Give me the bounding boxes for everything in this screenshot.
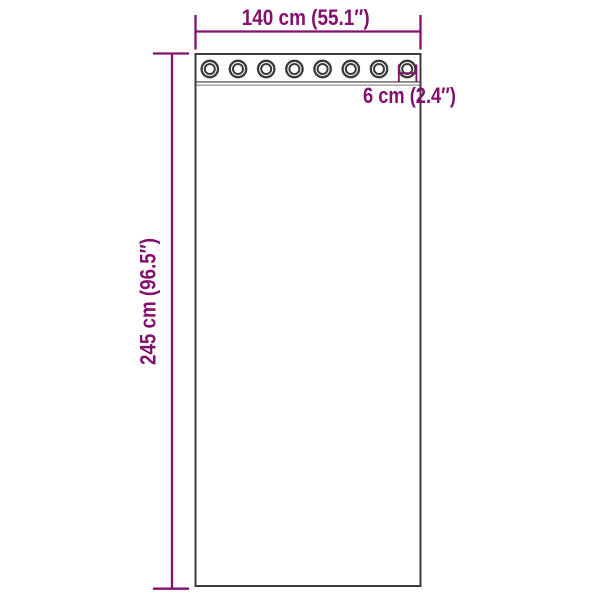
svg-text:140 cm (55.1″): 140 cm (55.1″) <box>242 5 370 30</box>
svg-text:245 cm (96.5″): 245 cm (96.5″) <box>136 238 161 365</box>
svg-text:6 cm (2.4″): 6 cm (2.4″) <box>363 83 456 108</box>
